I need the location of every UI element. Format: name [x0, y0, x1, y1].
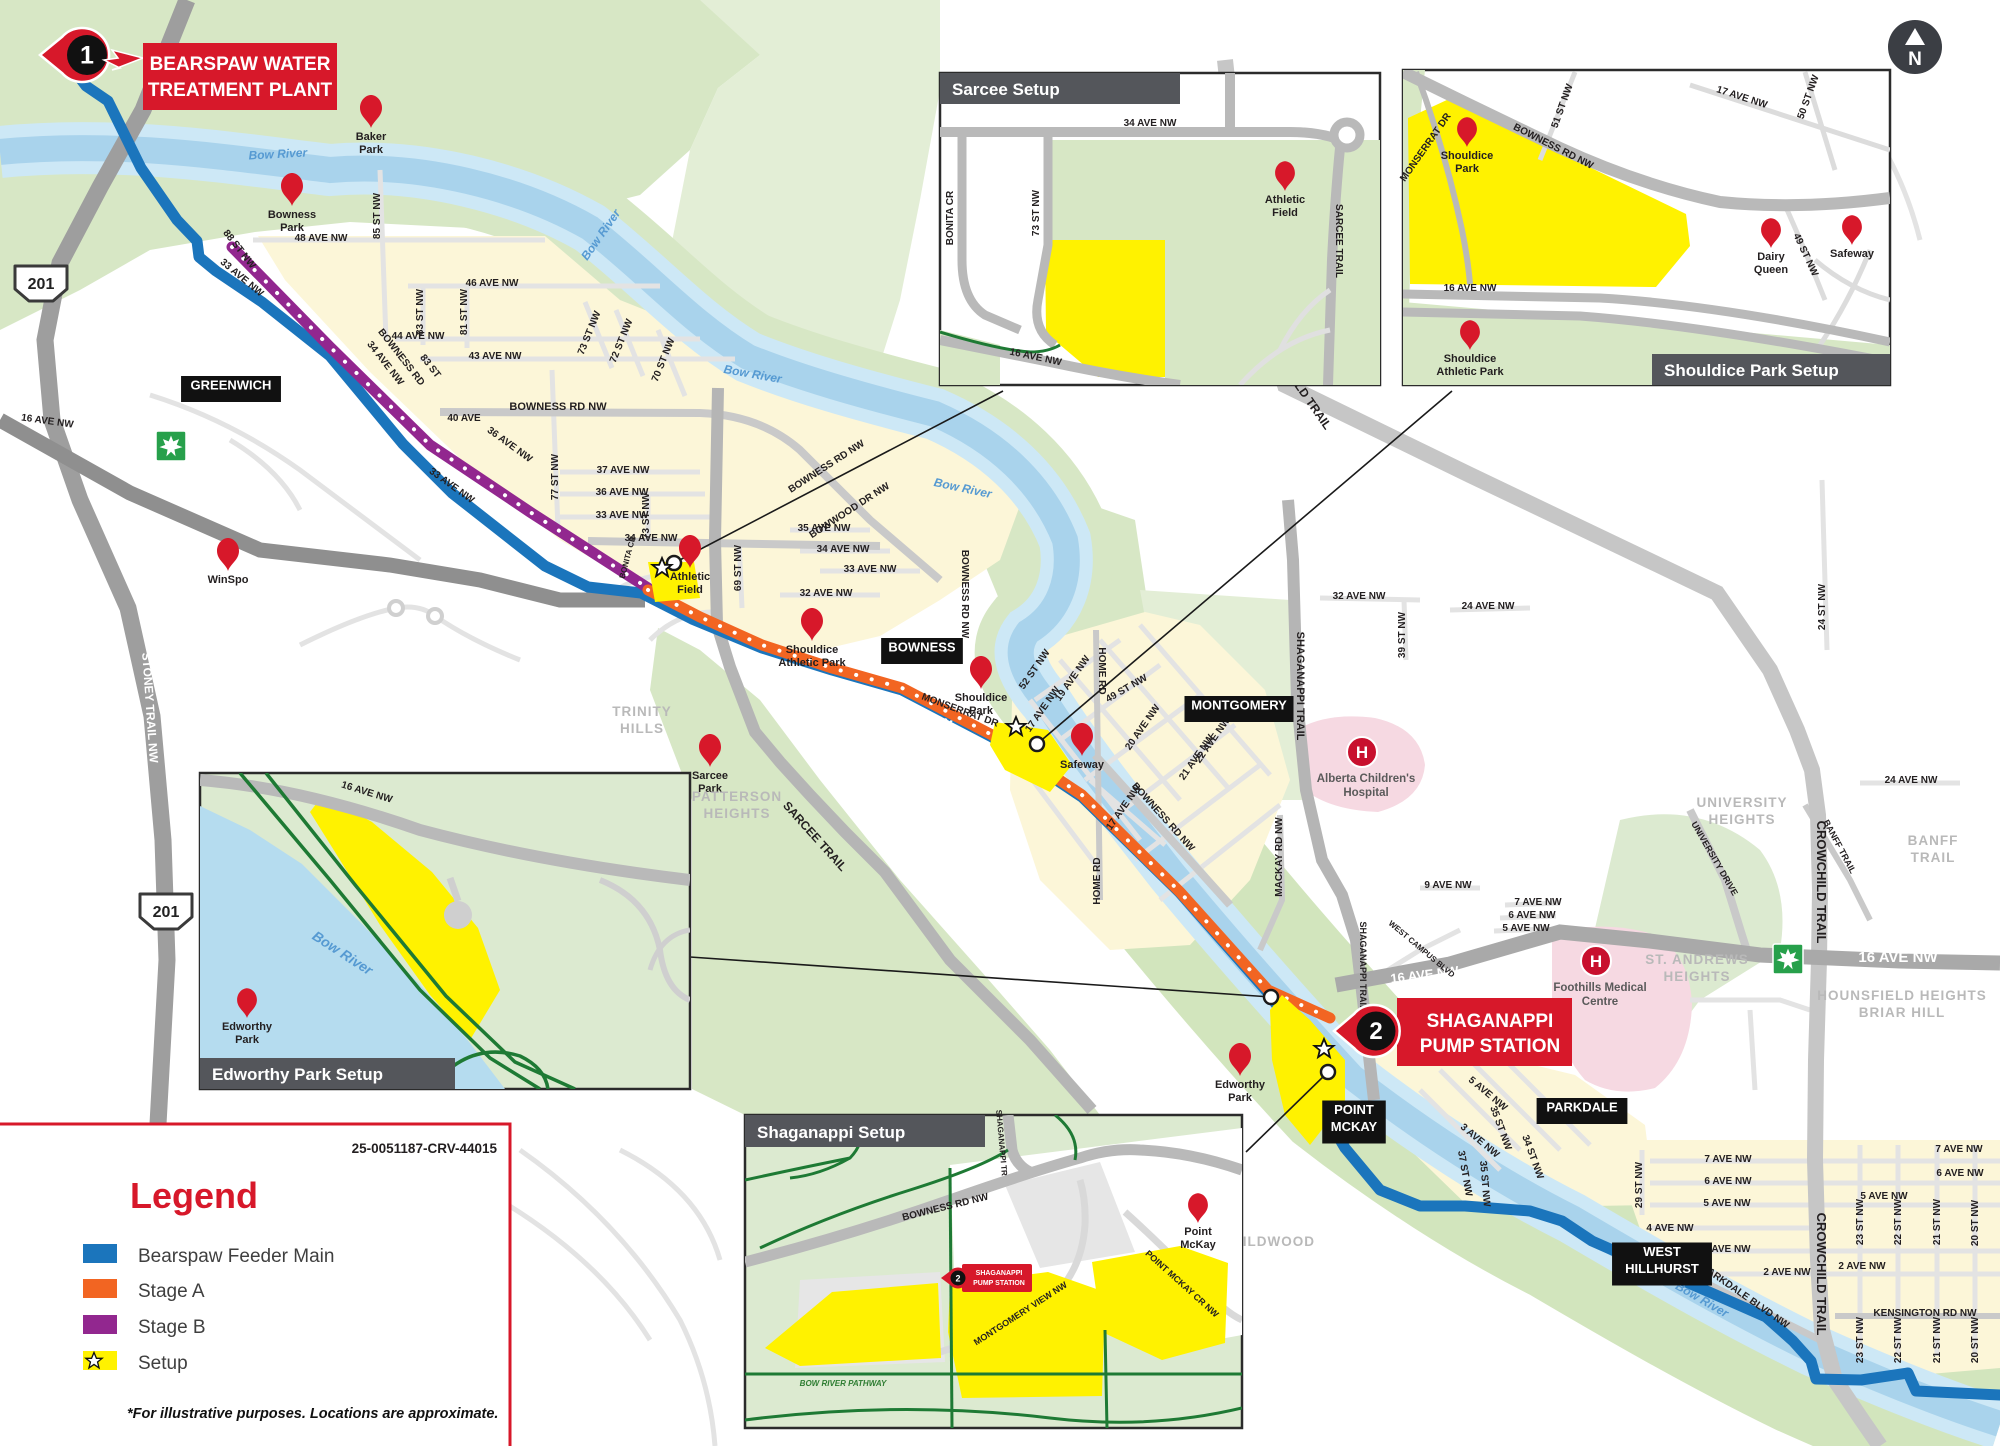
street-label: 69 ST NW — [733, 544, 744, 591]
poi-pin-label: BakerPark — [356, 131, 387, 156]
svg-text:PUMP STATION: PUMP STATION — [973, 1280, 1025, 1287]
inset-shouldice-title: Shouldice Park Setup — [1664, 361, 1839, 380]
svg-text:HOUNSFIELD HEIGHTS: HOUNSFIELD HEIGHTS — [1817, 988, 1987, 1003]
street-label: 5 AVE NW — [1703, 1198, 1751, 1209]
street-label: 37 AVE NW — [597, 465, 650, 476]
svg-text:HEIGHTS: HEIGHTS — [1663, 969, 1730, 984]
street-label: 7 AVE NW — [1935, 1144, 1983, 1155]
street-label: 16 AVE NW — [1444, 283, 1497, 294]
street-label: MACKAY RD NW — [1274, 817, 1285, 897]
inset-sarcee: 34 AVE NWBONITA CR73 ST NWSARCEE TRAIL16… — [940, 73, 1380, 385]
trans-canada-shield-icon — [156, 431, 186, 461]
street-label: 73 ST NW — [1031, 189, 1042, 236]
street-label: 73 ST NW — [641, 492, 652, 539]
svg-text:Alberta Children's: Alberta Children's — [1317, 773, 1416, 785]
svg-text:MCKAY: MCKAY — [1331, 1119, 1378, 1134]
street-label: BONITA CR — [945, 190, 956, 245]
street-label: 6 AVE NW — [1508, 910, 1556, 921]
highway-201-shield: 201 — [15, 266, 67, 301]
street-label: 81 ST NW — [459, 288, 470, 335]
street-label: 6 AVE NW — [1704, 1176, 1752, 1187]
legend-swatch-stage-b — [83, 1315, 117, 1334]
street-label: 21 ST NW — [1932, 1316, 1943, 1363]
street-label: 20 ST NW — [1970, 1316, 1981, 1363]
street-label: SHAGANAPPI TRAIL — [1358, 921, 1368, 1011]
street-label: 22 ST NW — [1893, 1316, 1904, 1363]
neighborhood-box: PARKDALE — [1537, 1098, 1628, 1124]
inset-sarcee-title: Sarcee Setup — [952, 80, 1060, 99]
doc-number: 25-0051187-CRV-44015 — [352, 1141, 498, 1156]
shaganappi-callout: 2 SHAGANAPPI PUMP STATION — [1334, 998, 1572, 1066]
street-label: BOWNESS RD NW — [959, 550, 970, 639]
inset-shaganappi: 2 SHAGANAPPI PUMP STATION SHAGANAPPI TRB… — [745, 1109, 1242, 1428]
svg-text:TRINITY: TRINITY — [612, 704, 672, 719]
map-canvas: HAlberta Children'sHospitalHFoothills Me… — [0, 0, 2000, 1446]
poi-pin-label: Safeway — [1830, 248, 1875, 260]
trans-canada-shield-icon — [1773, 944, 1803, 974]
svg-text:HEIGHTS: HEIGHTS — [1708, 812, 1775, 827]
poi-pin-label: Safeway — [1060, 759, 1105, 771]
inset-shouldice: MONSERRAT DRBOWNESS RD NW51 ST NW17 AVE … — [1398, 70, 1890, 385]
legend-swatch-feeder — [83, 1244, 117, 1263]
street-label: 34 AVE NW — [1124, 118, 1177, 129]
street-label: 29 ST NW — [1634, 1161, 1645, 1208]
street-label: 77 ST NW — [550, 453, 561, 500]
bearspaw-label-line2: TREATMENT PLANT — [148, 80, 333, 101]
svg-text:POINT: POINT — [1334, 1102, 1374, 1117]
street-label: 32 AVE NW — [800, 588, 853, 599]
street-label: 85 ST NW — [372, 192, 383, 239]
svg-text:ST. ANDREWS: ST. ANDREWS — [1645, 952, 1749, 967]
svg-text:HILLS: HILLS — [620, 721, 664, 736]
street-label: 48 AVE NW — [295, 233, 348, 244]
highway-201-shield: 201 — [140, 894, 192, 929]
inset-shaganappi-title: Shaganappi Setup — [757, 1123, 905, 1142]
shaganappi-marker-number: 2 — [1369, 1018, 1382, 1045]
svg-text:PATTERSON: PATTERSON — [692, 789, 782, 804]
street-label: 2 AVE NW — [1763, 1267, 1811, 1278]
street-label: 6 AVE NW — [1936, 1168, 1984, 1179]
street-label: 44 AVE NW — [392, 331, 445, 342]
poi-pin-label: PointMcKay — [1180, 1226, 1216, 1251]
shaganappi-label-line2: PUMP STATION — [1420, 1036, 1560, 1057]
svg-text:BRIAR HILL: BRIAR HILL — [1859, 1005, 1946, 1020]
inset-pump-station-badge: 2 SHAGANAPPI PUMP STATION — [941, 1264, 1032, 1292]
street-label: SHAGANAPPI TRAIL — [1294, 632, 1306, 741]
street-label: 24 AVE NW — [1885, 775, 1938, 786]
svg-text:201: 201 — [28, 276, 55, 293]
inset-edworthy: 16 AVE NWBow RiverEdworthyPark Edworthy … — [200, 773, 690, 1089]
svg-text:BANFF: BANFF — [1908, 833, 1959, 848]
street-label: 33 AVE NW — [844, 564, 897, 575]
street-label: 20 ST NW — [1970, 1199, 1981, 1246]
street-label: 24 AVE NW — [1462, 601, 1515, 612]
street-label: BOWNESS RD NW — [509, 401, 607, 413]
street-label: 43 AVE NW — [469, 351, 522, 362]
street-label: HOME RD — [1092, 857, 1103, 904]
legend-label-setup: Setup — [138, 1353, 188, 1374]
svg-text:SHAGANAPPI: SHAGANAPPI — [976, 1270, 1023, 1277]
inset-edworthy-title: Edworthy Park Setup — [212, 1065, 383, 1084]
street-label: CROWCHILD TRAIL — [1814, 1213, 1829, 1336]
north-arrow: N — [1888, 20, 1942, 74]
poi-pin-label: WinSpo — [208, 574, 249, 586]
street-label: 5 AVE NW — [1502, 923, 1550, 934]
legend-label-feeder: Bearspaw Feeder Main — [138, 1246, 334, 1267]
bearspaw-label-line1: BEARSPAW WATER — [150, 54, 331, 75]
neighborhood-box: WESTHILLHURST — [1612, 1243, 1712, 1286]
legend-note: *For illustrative purposes. Locations ar… — [127, 1406, 498, 1422]
svg-text:Hospital: Hospital — [1343, 787, 1388, 799]
street-label: SARCEE TRAIL — [1333, 204, 1344, 278]
street-label: 39 ST NW — [1397, 611, 1408, 658]
legend-title: Legend — [130, 1175, 258, 1216]
poi-pin-label: ShouldiceAthletic Park — [778, 644, 846, 669]
svg-text:BOWNESS: BOWNESS — [888, 640, 956, 655]
street-label: 83 ST NW — [415, 288, 426, 335]
hospital-h-icon: H — [1356, 743, 1368, 762]
bearspaw-marker-number: 1 — [80, 42, 94, 70]
legend: 25-0051187-CRV-44015 Legend Bearspaw Fee… — [0, 1124, 510, 1446]
svg-text:MONTGOMERY: MONTGOMERY — [1191, 698, 1287, 713]
svg-text:Centre: Centre — [1582, 996, 1618, 1008]
street-label: 2 AVE NW — [1838, 1261, 1886, 1272]
street-label: 32 AVE NW — [1333, 591, 1386, 602]
street-label: 40 AVE — [447, 413, 481, 424]
street-label: HOME RD — [1096, 647, 1107, 694]
street-label: 23 ST NW — [1855, 1316, 1866, 1363]
svg-text:UNIVERSITY: UNIVERSITY — [1696, 795, 1787, 810]
neighborhood-box: POINTMCKAY — [1322, 1101, 1386, 1144]
svg-text:201: 201 — [153, 904, 180, 921]
svg-text:TRAIL: TRAIL — [1911, 850, 1956, 865]
poi-pin-label: DairyQueen — [1754, 251, 1789, 276]
shaganappi-label-line1: SHAGANAPPI — [1427, 1011, 1554, 1032]
street-label: 9 AVE NW — [1424, 880, 1472, 891]
svg-text:HEIGHTS: HEIGHTS — [703, 806, 770, 821]
neighborhood-box: GREENWICH — [181, 376, 281, 402]
neighborhood-box: BOWNESS — [881, 638, 963, 664]
street-label: 24 ST NW — [1817, 583, 1828, 630]
svg-text:2: 2 — [955, 1274, 960, 1284]
street-label: 5 AVE NW — [1860, 1191, 1908, 1202]
street-label: 23 ST NW — [1855, 1198, 1866, 1245]
svg-text:WEST: WEST — [1643, 1244, 1681, 1259]
street-label: KENSINGTON RD NW — [1873, 1308, 1977, 1319]
street-label: 46 AVE NW — [466, 278, 519, 289]
svg-text:PARKDALE: PARKDALE — [1546, 1100, 1618, 1115]
street-label: CROWCHILD TRAIL — [1814, 821, 1829, 944]
poi-pin-label: ShouldiceAthletic Park — [1436, 353, 1504, 378]
street-label: 7 AVE NW — [1704, 1154, 1752, 1165]
legend-swatch-stage-a — [83, 1279, 117, 1298]
svg-text:HILLHURST: HILLHURST — [1625, 1261, 1699, 1276]
legend-label-stage-a: Stage A — [138, 1281, 205, 1302]
hospital-h-icon: H — [1590, 952, 1602, 971]
street-label: BOW RIVER PATHWAY — [800, 1379, 887, 1388]
svg-text:Foothills Medical: Foothills Medical — [1553, 982, 1646, 994]
north-arrow-label: N — [1908, 49, 1922, 70]
street-label: 22 ST NW — [1893, 1198, 1904, 1245]
neighborhood-box: MONTGOMERY — [1185, 696, 1294, 722]
street-label: 21 ST NW — [1932, 1198, 1943, 1245]
street-label: 16 AVE NW — [1858, 949, 1938, 966]
svg-text:GREENWICH: GREENWICH — [191, 378, 272, 393]
street-label: 4 AVE NW — [1646, 1223, 1694, 1234]
street-label: 34 AVE NW — [817, 544, 870, 555]
legend-label-stage-b: Stage B — [138, 1317, 206, 1338]
street-label: 7 AVE NW — [1514, 897, 1562, 908]
